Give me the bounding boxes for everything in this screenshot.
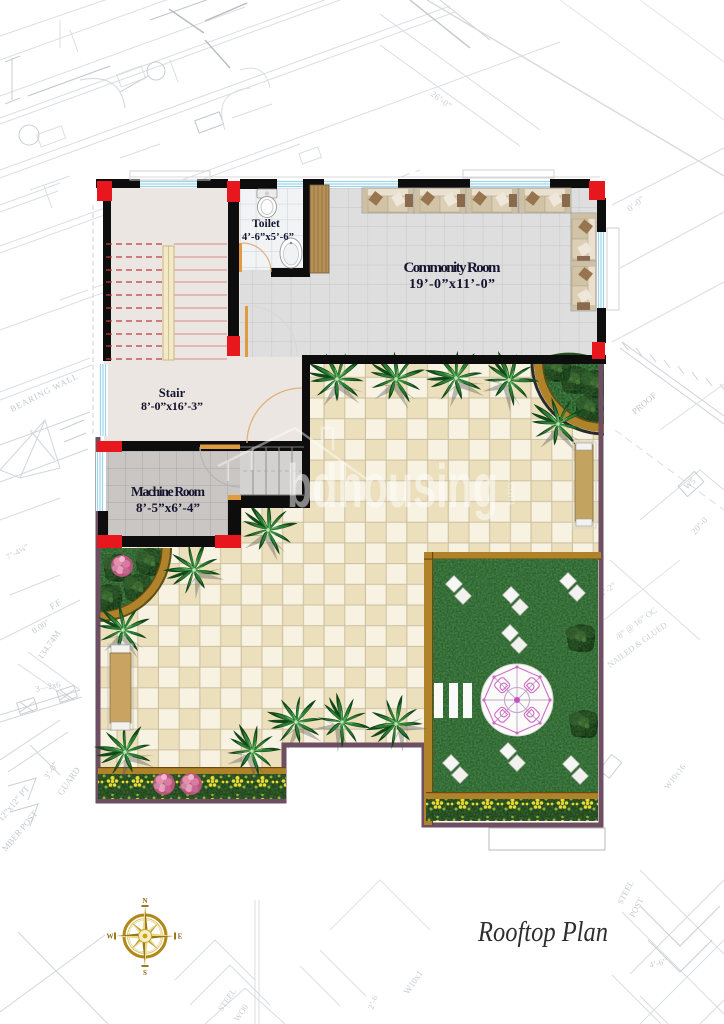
svg-text:19’-0”x11’-0”: 19’-0”x11’-0” [409,277,495,292]
svg-text:8’-0”x16’-3”: 8’-0”x16’-3” [141,399,203,413]
svg-text:bdhousing: bdhousing [287,452,498,520]
svg-text:Stair: Stair [159,386,186,400]
svg-text:W: W [107,933,114,941]
svg-text:8’-5”x6’-4”: 8’-5”x6’-4” [136,500,200,515]
svg-text:Rooftop Plan: Rooftop Plan [477,917,608,948]
svg-text:4’-6”x5’-6”: 4’-6”x5’-6” [242,232,294,243]
svg-text:Machine Room: Machine Room [131,484,206,499]
svg-text:N: N [142,897,147,905]
svg-text:Commonity Room: Commonity Room [404,260,502,276]
svg-text:E: E [178,933,183,941]
svg-text:Toilet: Toilet [252,218,280,230]
svg-text:.com: .com [505,479,519,505]
svg-text:S: S [143,969,147,977]
